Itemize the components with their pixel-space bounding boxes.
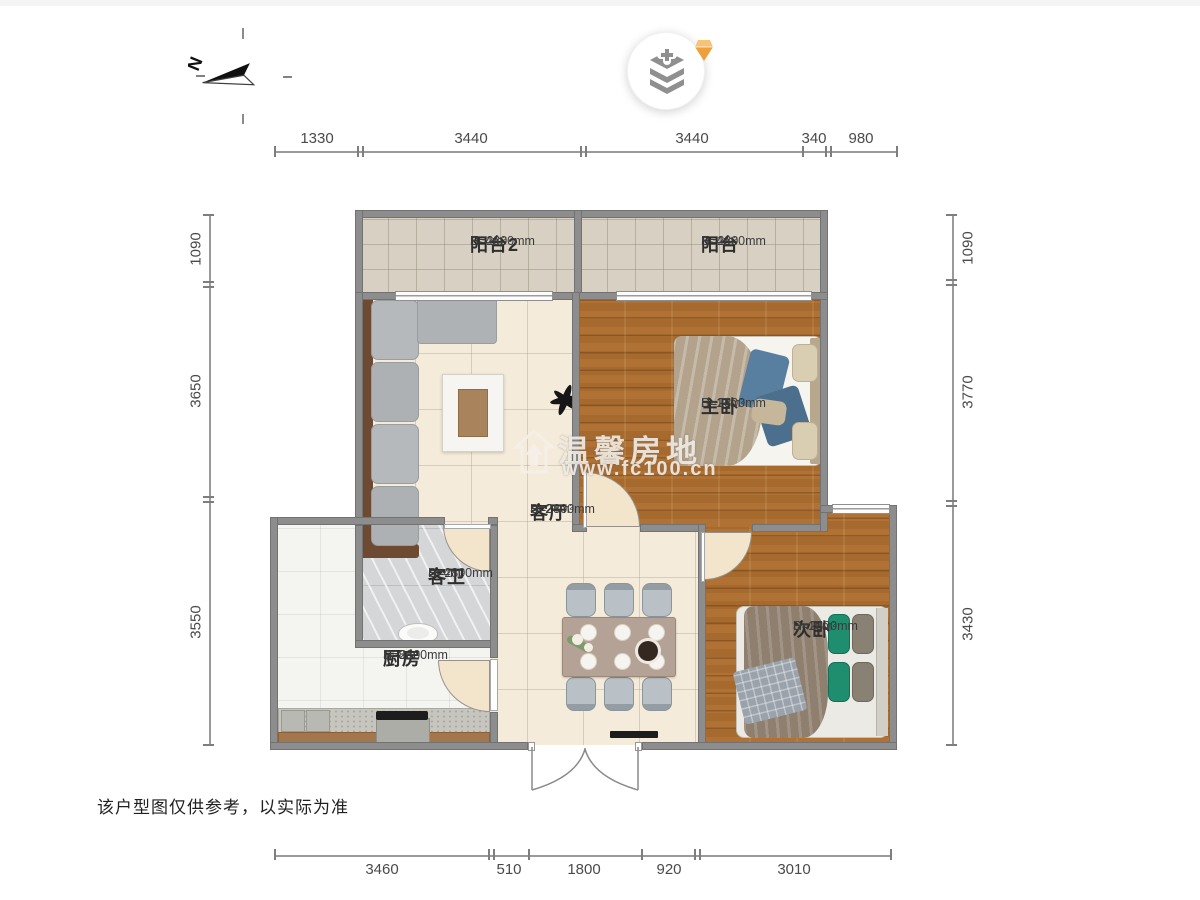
disclaimer-text: 该户型图仅供参考，以实际为准 [97,793,349,818]
table-flowers [572,634,583,645]
room-area: S≈14m² [701,396,745,411]
wall [752,524,828,532]
plate [614,653,631,670]
dim-label: 3460 [365,861,398,878]
dim-tick [488,849,490,860]
dim-label: 3010 [777,861,810,878]
dining-chair [642,583,672,617]
dim-line [952,214,954,745]
dim-label: 510 [496,861,521,878]
compass-n-label: N [188,54,207,74]
room-area: S≈8m² [383,648,420,663]
dim-tick [528,849,530,860]
wall [355,292,363,525]
wall [574,210,582,300]
wall [355,640,498,648]
dim-label: 1090 [960,231,977,264]
coffee-table-top [458,389,488,437]
dim-tick [203,286,214,288]
cooktop [376,711,428,720]
plate [580,653,597,670]
dim-tick [946,279,957,281]
window [616,291,812,301]
wall [490,525,498,658]
dim-tick [580,146,582,157]
add-layers-icon [644,47,690,97]
window [832,504,890,514]
dim-label: 920 [656,861,681,878]
wall [355,210,363,300]
room-area: S≈4m² [470,234,507,249]
dim-tick [896,146,898,157]
dim-label: 980 [848,130,873,147]
bed-pillow [792,422,818,460]
plate [648,624,665,641]
floorplan-page: 阳台2 H=2800mm S≈4m² 阳台 H=2800mm S≈4m² 主卧 … [0,0,1200,900]
door-mat [610,731,658,738]
green-pillow [828,662,850,702]
toilet-bowl [407,627,429,639]
dim-label: 3440 [675,130,708,147]
wall [889,505,897,750]
dim-tick [825,146,827,157]
bed-pillow [792,344,818,382]
dim-tick [890,849,892,860]
dim-label: 3650 [188,374,205,407]
dim-label: 3430 [960,607,977,640]
dim-label: 340 [801,130,826,147]
sofa-cushion [371,300,419,360]
dim-tick [203,501,214,503]
dim-tick [274,849,276,860]
sofa-cushion [371,362,419,422]
dining-chair [642,677,672,711]
dim-label: 1090 [188,232,205,265]
sofa-cushion [371,424,419,484]
dim-tick [203,214,214,216]
gem-icon [690,37,716,63]
dim-label: 3770 [960,375,977,408]
dim-label: 1800 [567,861,600,878]
dim-tick [203,496,214,498]
kitchen-door-leaf [490,659,498,711]
sofa-cushion [371,486,419,546]
wall [642,742,897,750]
watermark-url: www.fc100.cn [562,458,718,481]
plate [614,624,631,641]
wall [355,525,363,646]
kitchen-sink-unit [376,718,430,744]
sofa-frame-foot [357,544,419,558]
dim-tick [946,505,957,507]
food-bowl [638,641,658,661]
wall [270,517,445,525]
dim-tick [362,146,364,157]
bathroom-door-leaf [444,524,491,529]
room-area: S≈10m² [793,619,837,634]
dim-label: 3550 [188,605,205,638]
dining-chair [604,677,634,711]
dim-tick [946,284,957,286]
dim-tick [946,744,957,746]
dim-tick [357,146,359,157]
dim-tick [274,146,276,157]
sofa-chaise [417,296,497,344]
dim-tick [802,146,804,157]
gray-pillow [852,662,874,702]
counter-appliance [281,710,305,732]
dining-chair [566,677,596,711]
wall [270,742,528,750]
dim-tick [203,744,214,746]
page-top-band [0,0,1200,6]
counter-appliance [306,710,330,732]
north-arrow-icon: N [188,24,298,128]
wall [820,210,828,513]
dim-tick [694,849,696,860]
window [395,291,553,301]
room-area: S≈4m² [701,234,738,249]
room-area: S≈4m² [428,566,465,581]
dim-tick [946,500,957,502]
entry-double-door [525,747,645,797]
dim-line [209,214,211,745]
dim-tick [830,146,832,157]
dining-chair [566,583,596,617]
dim-tick [641,849,643,860]
dim-tick [203,281,214,283]
dim-line [274,855,891,857]
table-flowers [584,643,593,652]
dim-tick [946,214,957,216]
balcony2-floor [361,216,576,294]
room-area: S≈24m² [530,502,574,517]
dim-tick [493,849,495,860]
wall [270,517,278,750]
wall [355,210,828,218]
dim-tick [699,849,701,860]
dining-chair [604,583,634,617]
dim-tick [585,146,587,157]
house-icon [514,428,554,476]
second-bed-headboard [876,608,888,736]
second-bedroom-door-leaf [701,532,705,582]
wall [572,292,580,532]
dim-label: 1330 [300,130,333,147]
dim-label: 3440 [454,130,487,147]
wall [640,524,706,532]
